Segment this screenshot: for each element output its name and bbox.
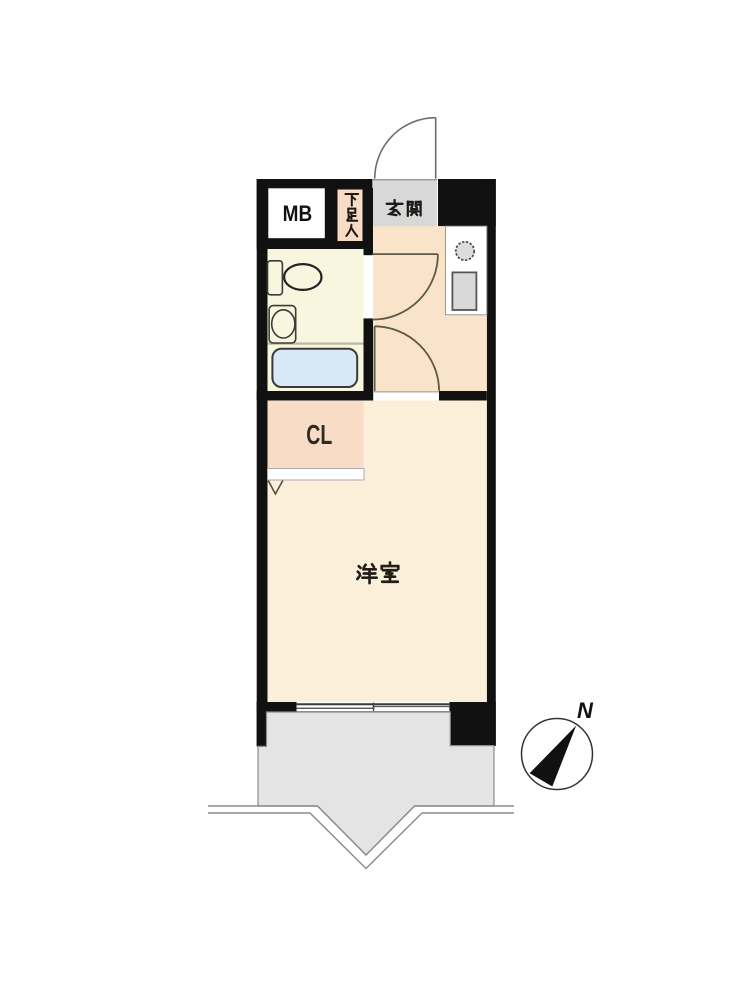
svg-text:CL: CL	[306, 419, 332, 450]
svg-text:MB: MB	[283, 201, 313, 226]
svg-text:N: N	[577, 698, 594, 723]
